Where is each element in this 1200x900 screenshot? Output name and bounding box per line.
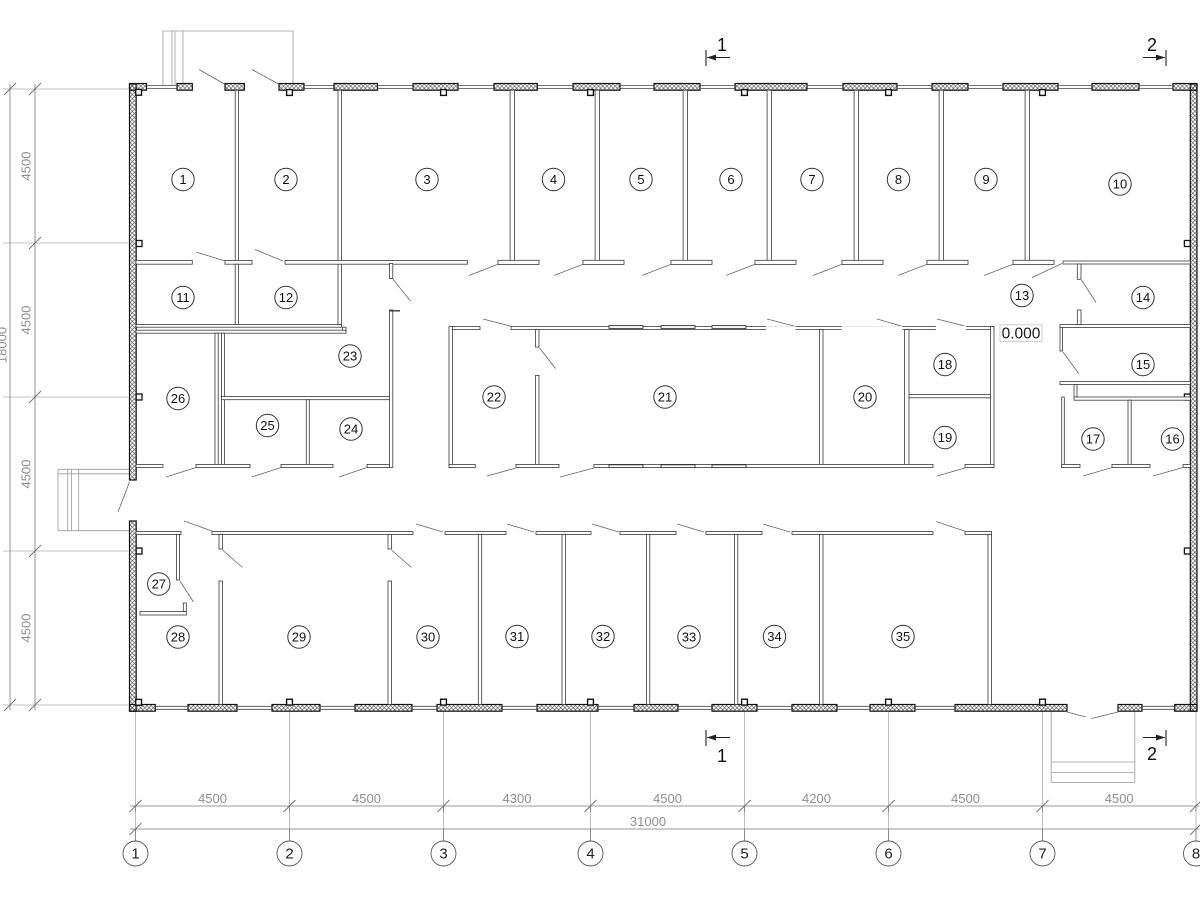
svg-text:1: 1 (717, 35, 727, 55)
svg-text:4300: 4300 (503, 791, 532, 806)
svg-text:4500: 4500 (198, 791, 227, 806)
svg-text:34: 34 (767, 629, 781, 644)
svg-text:2: 2 (285, 845, 293, 862)
svg-text:27: 27 (152, 577, 166, 592)
svg-text:19: 19 (938, 430, 952, 445)
svg-text:30: 30 (421, 630, 435, 645)
svg-text:4500: 4500 (951, 791, 980, 806)
svg-text:31000: 31000 (630, 814, 666, 829)
svg-text:4500: 4500 (653, 791, 682, 806)
svg-text:21: 21 (658, 390, 672, 405)
svg-text:4500: 4500 (1105, 791, 1134, 806)
svg-text:22: 22 (487, 390, 501, 405)
svg-text:4500: 4500 (19, 152, 34, 181)
svg-text:4500: 4500 (19, 306, 34, 335)
svg-text:3: 3 (423, 172, 430, 187)
svg-text:8: 8 (895, 172, 902, 187)
svg-text:0.000: 0.000 (1002, 326, 1041, 343)
svg-text:1: 1 (131, 845, 139, 862)
svg-text:5: 5 (740, 845, 748, 862)
svg-text:35: 35 (896, 629, 910, 644)
svg-text:7: 7 (808, 172, 815, 187)
svg-text:15: 15 (1136, 357, 1150, 372)
svg-text:13: 13 (1015, 288, 1029, 303)
svg-text:16: 16 (1165, 432, 1179, 447)
svg-text:4500: 4500 (352, 791, 381, 806)
svg-text:4500: 4500 (19, 614, 34, 643)
svg-text:6: 6 (884, 845, 892, 862)
svg-text:4500: 4500 (19, 460, 34, 489)
svg-text:1: 1 (717, 746, 727, 766)
svg-text:31: 31 (510, 629, 524, 644)
svg-text:4200: 4200 (802, 791, 831, 806)
svg-text:20: 20 (858, 390, 872, 405)
svg-text:28: 28 (171, 630, 185, 645)
svg-text:11: 11 (176, 290, 190, 305)
svg-text:33: 33 (682, 630, 696, 645)
svg-text:18000: 18000 (0, 327, 10, 363)
svg-text:8: 8 (1192, 845, 1200, 862)
svg-text:25: 25 (260, 418, 274, 433)
svg-text:3: 3 (439, 845, 447, 862)
svg-text:4: 4 (586, 845, 594, 862)
svg-text:18: 18 (938, 357, 952, 372)
svg-text:2: 2 (282, 172, 289, 187)
svg-text:14: 14 (1136, 290, 1150, 305)
svg-text:29: 29 (292, 630, 306, 645)
svg-text:17: 17 (1086, 432, 1100, 447)
svg-text:1: 1 (179, 172, 186, 187)
svg-text:5: 5 (637, 172, 644, 187)
svg-text:9: 9 (982, 172, 989, 187)
svg-text:10: 10 (1113, 177, 1127, 192)
svg-text:23: 23 (343, 349, 357, 364)
svg-text:12: 12 (279, 290, 293, 305)
svg-text:6: 6 (727, 172, 734, 187)
svg-text:32: 32 (596, 629, 610, 644)
svg-text:4: 4 (550, 172, 557, 187)
svg-text:26: 26 (171, 391, 185, 406)
svg-text:2: 2 (1147, 35, 1157, 55)
svg-text:24: 24 (344, 422, 358, 437)
svg-text:2: 2 (1147, 744, 1157, 764)
svg-text:7: 7 (1038, 845, 1046, 862)
